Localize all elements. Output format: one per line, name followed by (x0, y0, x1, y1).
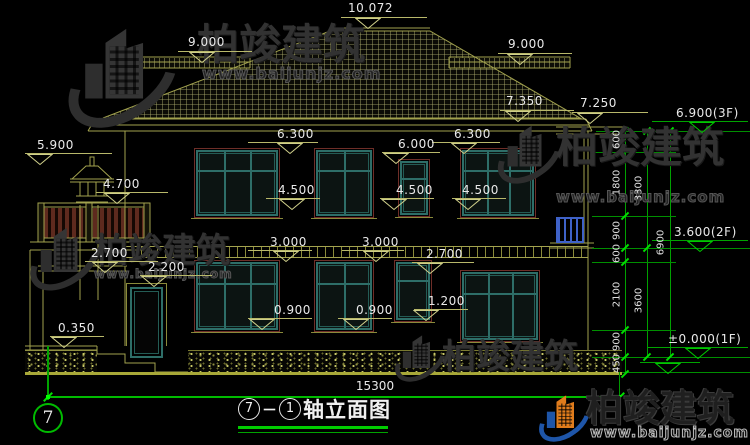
window (316, 150, 372, 216)
level-marker-label: 9.000 (188, 36, 225, 49)
level-marker-label: 2.700 (91, 247, 128, 260)
level-marker-label: 3.000 (362, 236, 399, 249)
title-text: 轴立面图 (303, 394, 391, 424)
level-marker-triangle (685, 348, 711, 360)
window-surround (460, 270, 540, 342)
level-marker-label: 4.700 (103, 178, 140, 191)
level-marker-label: 7.350 (506, 95, 543, 108)
drawing-title: 7 － 1 轴立面图 (238, 396, 391, 422)
dimension-segment-value: 450 (612, 334, 623, 394)
watermark-brand-text: 柏竣建筑 (442, 340, 578, 374)
level-marker-label: 7.250 (580, 97, 617, 110)
axis-bubble: 7 (33, 403, 63, 433)
level-marker-triangle (104, 193, 130, 205)
level-marker-triangle (355, 18, 381, 30)
window-transom (398, 280, 428, 282)
title-underline-thick (238, 426, 388, 429)
window (462, 272, 538, 340)
window-transom (198, 283, 276, 285)
window-sill (311, 332, 377, 333)
level-marker-line (341, 17, 427, 18)
balcony-railing (556, 217, 584, 243)
level-marker-label: 9.000 (508, 38, 545, 51)
window-sill (191, 332, 283, 333)
level-marker-triangle (417, 263, 443, 275)
window-mullion (224, 152, 226, 214)
level-marker-triangle (687, 241, 713, 253)
logo-building (508, 146, 518, 166)
level-marker-triangle (141, 276, 167, 288)
window-sill (191, 218, 283, 219)
watermark-url-text: www.baijunjz.com (590, 426, 749, 440)
window-sill (391, 322, 435, 323)
level-marker-label: 4.500 (278, 184, 315, 197)
dimension-segment-value: 3300 (634, 159, 645, 219)
window-mullion (344, 152, 346, 214)
level-marker-label: 6.900(3F) (676, 107, 739, 120)
level-marker-label: 1.200 (428, 295, 465, 308)
level-marker-label: 6.300 (454, 128, 491, 141)
level-marker-label: 5.900 (37, 139, 74, 152)
logo-building (85, 64, 102, 99)
level-marker-label: 3.000 (270, 236, 307, 249)
brand-logo-icon (62, 26, 193, 130)
level-marker-label: ±0.000(1F) (668, 333, 741, 346)
level-marker-triangle (507, 54, 533, 66)
window-transom (198, 170, 276, 172)
dimension-segment-value: 6900 (656, 213, 667, 273)
window-sill (457, 218, 539, 219)
window-mullion (512, 274, 514, 338)
cad-elevation-drawing: 7 15300 7 － 1 轴立面图 10.0729.0009.0007.350… (0, 0, 750, 445)
level-marker-label: 0.350 (58, 322, 95, 335)
title-dash: － (262, 399, 277, 420)
level-marker-triangle (273, 251, 299, 263)
axis-to-circle: 1 (279, 398, 301, 420)
level-marker-triangle (505, 111, 531, 123)
window-sill (311, 218, 377, 219)
level-marker-label: 6.000 (398, 138, 435, 151)
window-mullion (250, 152, 252, 214)
level-marker-triangle (655, 363, 681, 375)
level-marker-label: 6.300 (277, 128, 314, 141)
window-transom (464, 293, 536, 295)
level-marker-label: 2.700 (426, 248, 463, 261)
level-marker-label: 0.900 (274, 304, 311, 317)
level-marker-triangle (92, 262, 118, 274)
level-marker-triangle (455, 199, 481, 211)
level-marker-label: 3.600(2F) (674, 226, 737, 239)
level-extension-line (622, 372, 750, 373)
level-marker-label: 4.500 (462, 184, 499, 197)
level-marker-label: 0.900 (356, 304, 393, 317)
window-sill (395, 217, 433, 218)
level-marker-label: 10.072 (348, 2, 393, 15)
level-marker-triangle (577, 113, 603, 125)
level-marker-triangle (413, 310, 439, 322)
level-marker-triangle (689, 122, 715, 134)
level-marker-triangle (381, 199, 407, 211)
window-surround (194, 148, 280, 218)
overall-dimension-value: 15300 (330, 379, 420, 393)
logo-building (41, 250, 52, 272)
watermark-brand-text: 柏竣建筑 (586, 390, 734, 427)
level-marker-triangle (363, 251, 389, 263)
window-transom (402, 178, 426, 180)
axis-grid-line (47, 346, 49, 400)
axis-from-circle: 7 (238, 398, 260, 420)
dimension-node (46, 395, 50, 399)
level-marker-triangle (27, 154, 53, 166)
logo-building (403, 352, 411, 368)
logo-building (547, 412, 555, 428)
window-mullion (488, 274, 490, 338)
level-marker-label: 2.200 (148, 261, 185, 274)
level-marker-triangle (51, 337, 77, 349)
level-marker-triangle (249, 319, 275, 331)
title-underline-thin (238, 432, 388, 433)
level-marker-triangle (277, 143, 303, 155)
dimension-segment-value: 3600 (634, 271, 645, 331)
entry-door (130, 287, 163, 358)
level-marker-triangle (451, 143, 477, 155)
watermark-url-text: www.baijunjz.com (202, 66, 381, 82)
level-marker-triangle (279, 199, 305, 211)
window (196, 150, 278, 216)
level-marker-triangle (343, 319, 369, 331)
level-marker-label: 4.500 (396, 184, 433, 197)
level-marker-triangle (383, 153, 409, 165)
level-marker-triangle (189, 52, 215, 64)
